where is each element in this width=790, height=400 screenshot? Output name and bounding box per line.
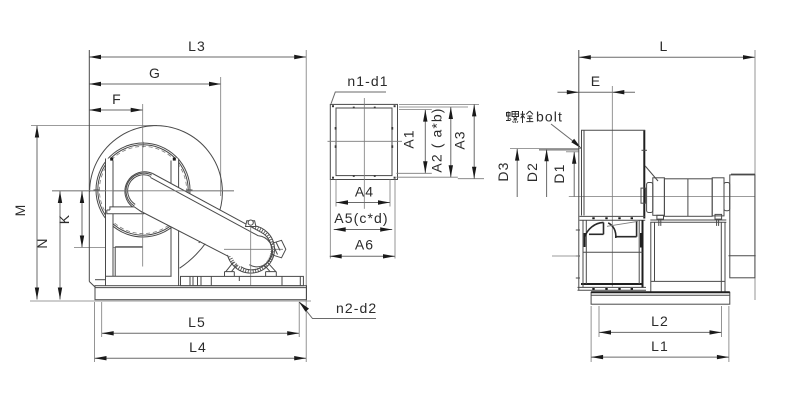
- svg-text:L2: L2: [651, 313, 669, 329]
- svg-text:E: E: [591, 73, 601, 89]
- svg-text:A6: A6: [355, 237, 374, 253]
- svg-text:A3: A3: [452, 130, 468, 149]
- svg-text:N: N: [34, 237, 50, 248]
- svg-text:A1: A1: [401, 129, 417, 148]
- svg-text:L3: L3: [188, 38, 206, 54]
- svg-text:D3: D3: [495, 161, 511, 181]
- svg-text:L4: L4: [189, 339, 207, 355]
- svg-text:D1: D1: [551, 163, 567, 183]
- svg-text:M: M: [12, 204, 28, 217]
- svg-text:L5: L5: [188, 314, 206, 330]
- svg-text:A2 ( a*b): A2 ( a*b): [429, 107, 445, 172]
- svg-text:L: L: [660, 38, 669, 54]
- svg-text:A5(c*d): A5(c*d): [334, 210, 388, 226]
- svg-text:K: K: [56, 214, 72, 224]
- svg-text:A4: A4: [355, 184, 374, 200]
- svg-text:L1: L1: [651, 338, 669, 354]
- svg-text:bolt: bolt: [536, 109, 563, 125]
- svg-text:F: F: [112, 91, 122, 107]
- svg-text:n1-d1: n1-d1: [347, 73, 388, 89]
- svg-text:G: G: [149, 65, 161, 81]
- svg-text:n2-d2: n2-d2: [336, 300, 377, 316]
- svg-text:D2: D2: [524, 162, 540, 182]
